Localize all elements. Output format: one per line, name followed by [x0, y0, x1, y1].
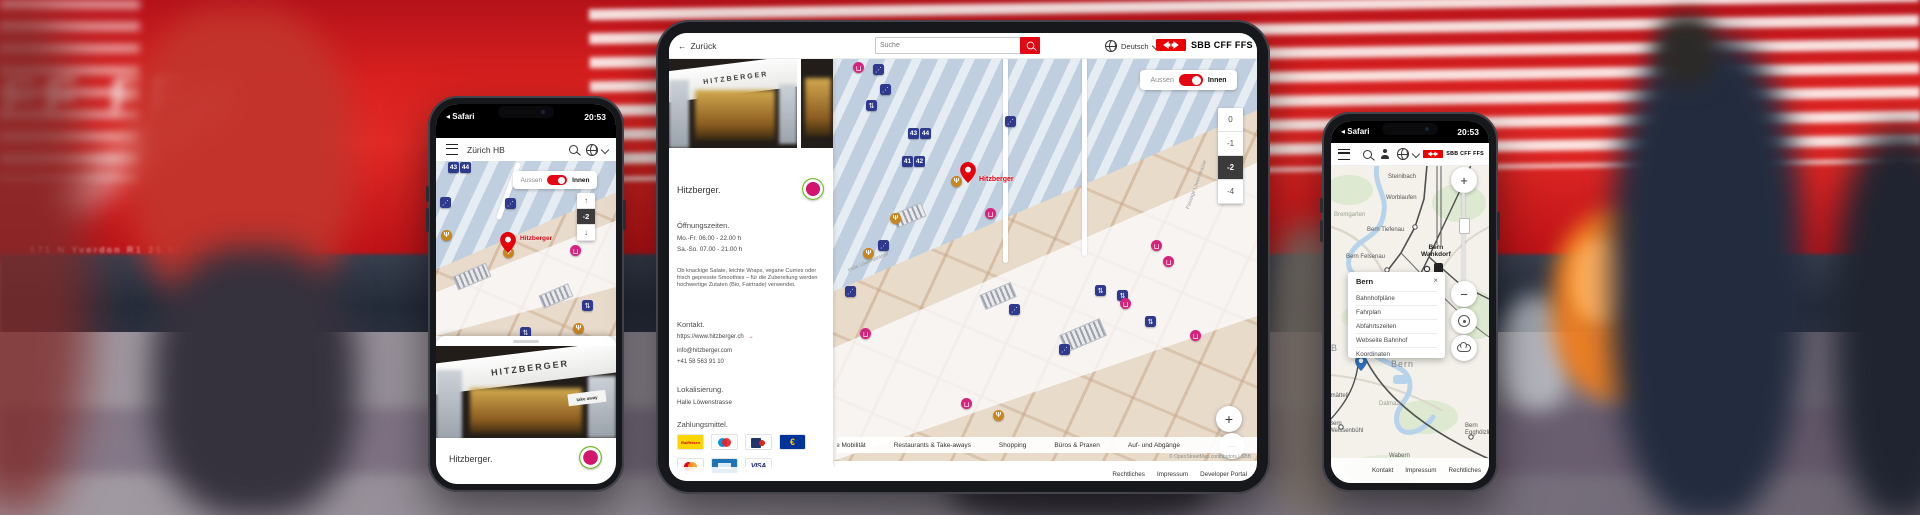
- email-link[interactable]: info@hitzberger.com: [677, 348, 732, 354]
- zoom-out-button[interactable]: −: [1451, 281, 1477, 307]
- floor-up-button[interactable]: ↑: [577, 193, 595, 209]
- footer-link[interactable]: Impressum: [1157, 471, 1188, 478]
- sbb-flag-icon: [1423, 150, 1443, 158]
- language-globe-icon[interactable]: [1397, 148, 1409, 160]
- popup-menu-item[interactable]: Webseite Bahnhof: [1356, 333, 1437, 347]
- hours-line: Sa.-So. 07.00 - 21.00 h: [677, 246, 742, 253]
- place-label: Bern: [1391, 361, 1414, 368]
- locate-icon: [1458, 315, 1470, 327]
- place-label: B: [1331, 345, 1338, 352]
- website-link[interactable]: https://www.hitzberger.ch →: [677, 334, 754, 340]
- phone-footer: KontaktImpressumRechtliches: [1331, 458, 1489, 483]
- legend-item[interactable]: Büros & Praxen: [1038, 439, 1100, 451]
- pin-label[interactable]: Hitzberger: [520, 235, 552, 242]
- chevron-down-icon: [601, 145, 609, 153]
- sbb-wordmark: SBB CFF FFS: [1191, 40, 1253, 50]
- place-label: Bern Weissenbühl: [1331, 421, 1363, 435]
- floor-selector: 0-1-2-4: [1218, 108, 1243, 204]
- back-button[interactable]: ← Zurück: [678, 41, 716, 51]
- user-icon[interactable]: [1380, 149, 1389, 159]
- toggle-label-innen: Innen: [1208, 77, 1227, 84]
- popup-title: Bern: [1356, 277, 1373, 286]
- app-header: Zürich HB: [436, 138, 616, 162]
- map-attribution: © OpenStreetMap contributors | SBB: [1169, 454, 1251, 460]
- legend-item[interactable]: Restaurants & Take-aways: [878, 439, 971, 451]
- language-selector[interactable]: Deutsch: [1105, 40, 1159, 52]
- poi-icon[interactable]: [1059, 344, 1070, 355]
- phone-left-power-button[interactable]: [623, 200, 626, 230]
- platform-sign: 44: [460, 162, 471, 173]
- poi-icon[interactable]: [853, 62, 864, 73]
- clock: 20:53: [584, 112, 606, 122]
- station-title: Zürich HB: [467, 145, 505, 155]
- sbb-wordmark: SBB CFF FFS: [1446, 151, 1484, 157]
- store-description: Ob knackige Salate, leichte Wraps, vegan…: [677, 268, 825, 289]
- photo-window: [588, 376, 616, 438]
- locate-button[interactable]: [1451, 308, 1477, 334]
- poi-icon[interactable]: [1120, 298, 1131, 309]
- blurred-person-navy: [1612, 36, 1802, 515]
- store-title: Hitzberger.: [449, 454, 493, 464]
- detail-panel: HITZBERGER Hitzberger. Öffnungszeiten. M…: [669, 58, 833, 467]
- poi-icon[interactable]: [1009, 304, 1020, 315]
- search-icon[interactable]: [1363, 150, 1372, 159]
- hitzberger-logo: [802, 178, 824, 200]
- poi-icon[interactable]: [961, 398, 972, 409]
- photo-shelves: [470, 388, 582, 434]
- back-to-safari[interactable]: ◂ Safari: [446, 112, 474, 121]
- globe-icon: [1105, 40, 1117, 52]
- legend-item[interactable]: Shopping: [983, 439, 1026, 451]
- cloud-icon: [1457, 344, 1471, 352]
- location-pin-icon: [960, 162, 976, 183]
- toggle-label-aussen: Aussen: [1150, 77, 1173, 84]
- phone-left-volume-button[interactable]: [426, 208, 429, 232]
- footer-link[interactable]: Rechtliches: [1112, 471, 1145, 478]
- legend-icon: [1112, 439, 1124, 451]
- phone-right-volume-button[interactable]: [1320, 220, 1323, 242]
- place-label: Bern Egghölzli: [1465, 423, 1489, 437]
- toggle-label-innen: Innen: [572, 177, 589, 184]
- floor-button[interactable]: -4: [1218, 180, 1243, 204]
- poi-icon[interactable]: [440, 197, 451, 208]
- place-label: Dalmazi: [1379, 401, 1401, 408]
- poi-icon[interactable]: [890, 213, 901, 224]
- phone-right: ◂ Safari 20:53 SBB CFF FFS: [1322, 112, 1498, 492]
- photo-shelves: [805, 78, 831, 136]
- poi-icon[interactable]: [1095, 285, 1106, 296]
- back-arrow-icon: ←: [678, 41, 687, 51]
- legend-icon: [878, 439, 890, 451]
- hitzberger-logo: [579, 446, 602, 469]
- floor-button[interactable]: -1: [1218, 132, 1243, 156]
- popup-menu-item[interactable]: Bahnhofpläne: [1356, 291, 1437, 305]
- platform-sign: 43: [448, 162, 459, 173]
- pin-label[interactable]: Hitzberger: [979, 176, 1014, 183]
- legend-label: Kombinierte Mobilität: [837, 442, 866, 449]
- indoor-outdoor-toggle[interactable]: Aussen Innen: [1140, 70, 1237, 90]
- poi-icon[interactable]: [1145, 316, 1156, 327]
- contact-heading: Kontakt.: [677, 320, 705, 329]
- footer-link[interactable]: Impressum: [1405, 467, 1436, 474]
- map-pillar: [1003, 58, 1008, 263]
- place-label: Fischermätteli: [1331, 393, 1348, 400]
- poi-icon[interactable]: [993, 410, 1004, 421]
- language-label: Deutsch: [1121, 42, 1149, 51]
- indoor-map[interactable]: 4344 Hitzberger Aussen Innen ↑ -2 ↓: [436, 161, 616, 336]
- location-value: Halle Löwenstrasse: [677, 399, 732, 406]
- platform-signs-4344: 4344: [908, 128, 931, 139]
- footer-link[interactable]: Rechtliches: [1448, 467, 1481, 474]
- phone-left: ◂ Safari 20:53 Zürich HB 4344: [428, 96, 624, 492]
- place-label: Bern Tiefenau: [1367, 227, 1404, 234]
- app-header: SBB CFF FFS: [1331, 143, 1489, 166]
- status-bar: ◂ Safari 20:53: [436, 104, 616, 138]
- floor-button[interactable]: 0: [1218, 108, 1243, 132]
- back-label: Zurück: [691, 41, 717, 51]
- hours-list: Mo.-Fr. 06.00 - 22.00 hSa.-So. 07.00 - 2…: [677, 235, 742, 257]
- floor-down-button[interactable]: ↓: [577, 225, 595, 241]
- chevron-down-icon: [1412, 150, 1420, 158]
- payment-heading: Zahlungsmittel.: [677, 420, 728, 429]
- legend-item[interactable]: Kombinierte Mobilität: [837, 439, 866, 451]
- photo-shelves: [695, 90, 775, 140]
- payment-logo: Raiffeisen: [677, 434, 704, 450]
- place-label: Bern Wankdorf: [1421, 244, 1451, 258]
- sbb-flag-icon: [1156, 39, 1186, 51]
- poi-icon[interactable]: [1005, 116, 1016, 127]
- camera-icon: [1425, 127, 1429, 131]
- camera-icon: [541, 110, 545, 114]
- poi-icon[interactable]: [1151, 240, 1162, 251]
- blurred-person-right: [1835, 130, 1920, 515]
- poi-icon[interactable]: [570, 245, 581, 256]
- poi-icon[interactable]: [441, 230, 452, 241]
- platform-signs: 4344: [448, 162, 471, 173]
- legend-label: Shopping: [999, 442, 1026, 449]
- phone-left-volume-button[interactable]: [426, 186, 429, 202]
- poi-icon[interactable]: [860, 328, 871, 339]
- popup-menu-item[interactable]: Fahrplan: [1356, 305, 1437, 319]
- floor-current: -2: [577, 209, 595, 225]
- store-photo: HITZBERGER: [669, 58, 797, 148]
- station-map[interactable]: Passage LöwenstrasseHalle Löwenstrasse 4…: [833, 58, 1257, 461]
- legend-label: Restaurants & Take-aways: [894, 442, 971, 449]
- search-input[interactable]: [875, 37, 1026, 54]
- poi-icon[interactable]: [1190, 330, 1201, 341]
- phone-right-volume-button[interactable]: [1320, 198, 1323, 213]
- hours-line: Mo.-Fr. 06.00 - 22.00 h: [677, 235, 742, 242]
- status-bar: ◂ Safari 20:53: [1331, 121, 1489, 143]
- phone-notch: [498, 106, 554, 118]
- blurred-person-head: [1655, 14, 1717, 86]
- tablet-footer: RechtlichesImpressumDeveloper Portal: [669, 467, 1257, 481]
- legend-label: Auf- und Abgänge: [1128, 442, 1180, 449]
- photo-window: [779, 84, 797, 144]
- search-icon[interactable]: [569, 145, 578, 154]
- photo-window: [669, 80, 689, 148]
- poi-icon[interactable]: [505, 198, 516, 209]
- toggle-label-aussen: Aussen: [520, 177, 542, 184]
- close-icon[interactable]: ×: [1433, 276, 1438, 285]
- footer-link[interactable]: Developer Portal: [1200, 471, 1247, 478]
- poi-icon[interactable]: [866, 100, 877, 111]
- platform-signs-4142: 4142: [902, 156, 925, 167]
- zoom-in-button[interactable]: +: [1216, 406, 1242, 432]
- location-heading: Lokalisierung.: [677, 385, 723, 394]
- back-to-safari[interactable]: ◂ Safari: [1341, 127, 1369, 136]
- phone-right-power-button[interactable]: [1497, 212, 1500, 240]
- store-photo-2: [801, 58, 833, 148]
- zoom-in-button[interactable]: +: [1451, 167, 1477, 193]
- place-label: Bern Felsenau: [1346, 254, 1385, 261]
- map-legend: Kombinierte Mobilität Restaurants & Take…: [837, 437, 1257, 453]
- store-photo: HITZBERGER take away: [436, 346, 616, 438]
- toolbar: ← Zurück Deutsch SBB CFF FFS: [669, 33, 1257, 59]
- payment-logo: €: [779, 434, 806, 450]
- bottom-sheet[interactable]: HITZBERGER take away Hitzberger.: [436, 336, 616, 484]
- legend-item[interactable]: Auf- und Abgänge: [1112, 439, 1180, 451]
- legend-icon: [1038, 439, 1050, 451]
- sheet-drag-handle[interactable]: [513, 340, 539, 343]
- toggle-switch[interactable]: [547, 175, 567, 185]
- payment-logo: [711, 434, 738, 450]
- poi-icon[interactable]: [573, 323, 584, 334]
- payment-row: Raiffeisen€: [677, 434, 806, 450]
- poi-icon[interactable]: [520, 327, 531, 336]
- platform-sign: 43: [908, 128, 919, 139]
- poi-icon[interactable]: [878, 240, 889, 251]
- hours-heading: Öffnungszeiten.: [677, 221, 729, 230]
- phone-link[interactable]: +41 58 563 91 10: [677, 359, 724, 365]
- poi-icon[interactable]: [845, 286, 856, 297]
- photo-window: [436, 370, 462, 438]
- store-title: Hitzberger.: [677, 185, 721, 195]
- legend-label: Büros & Praxen: [1054, 442, 1100, 449]
- place-label: Worblaufen: [1386, 195, 1417, 202]
- language-globe-icon[interactable]: [586, 144, 598, 156]
- legend-icon: [983, 439, 995, 451]
- station-popup: Bern × BahnhofpläneFahrplanAbfahrtszeite…: [1348, 272, 1445, 358]
- platform-sign: 42: [914, 156, 925, 167]
- poi-icon[interactable]: [873, 64, 884, 75]
- place-label: Steinibach: [1388, 174, 1416, 181]
- website-url: https://www.hitzberger.ch: [677, 334, 744, 340]
- search-button[interactable]: [1020, 37, 1040, 54]
- platform-sign: 44: [920, 128, 931, 139]
- phone-notch: [1382, 123, 1438, 135]
- poi-icon[interactable]: [863, 248, 874, 259]
- blurred-person-legs: [152, 248, 357, 515]
- place-label: Bremgarten: [1334, 212, 1365, 219]
- tablet: ← Zurück Deutsch SBB CFF FFS: [656, 20, 1270, 494]
- indoor-outdoor-toggle[interactable]: Aussen Innen: [513, 171, 597, 189]
- sbb-logo: SBB CFF FFS: [1156, 39, 1253, 51]
- map-pillar: [1082, 58, 1087, 256]
- search-icon: [1026, 42, 1034, 50]
- location-pin-icon: [500, 232, 516, 253]
- payment-logo: [745, 434, 772, 450]
- popup-menu-item[interactable]: Koordinaten: [1356, 347, 1437, 361]
- layers-button[interactable]: [1451, 335, 1477, 361]
- floor-selector: ↑ -2 ↓: [577, 193, 595, 241]
- menu-icon[interactable]: [446, 144, 458, 155]
- poi-icon[interactable]: [985, 208, 996, 219]
- menu-icon[interactable]: [1338, 149, 1350, 160]
- poi-icon[interactable]: [1163, 256, 1174, 267]
- zoom-slider-track[interactable]: [1462, 193, 1465, 283]
- platform-sign: 41: [902, 156, 913, 167]
- external-link-arrow-icon: →: [748, 334, 754, 340]
- zoom-slider-handle[interactable]: [1459, 218, 1470, 234]
- poi-icon[interactable]: [582, 300, 593, 311]
- footer-link[interactable]: Kontakt: [1372, 467, 1393, 474]
- floor-button[interactable]: -2: [1218, 156, 1243, 180]
- poi-icon[interactable]: [880, 84, 891, 95]
- popup-menu: BahnhofpläneFahrplanAbfahrtszeitenWebsei…: [1356, 291, 1437, 361]
- clock: 20:53: [1457, 127, 1479, 137]
- city-map[interactable]: SteinibachWorblaufenBremgartenBern Tiefe…: [1331, 165, 1489, 483]
- popup-menu-item[interactable]: Abfahrtszeiten: [1356, 319, 1437, 333]
- toggle-switch[interactable]: [1179, 74, 1203, 86]
